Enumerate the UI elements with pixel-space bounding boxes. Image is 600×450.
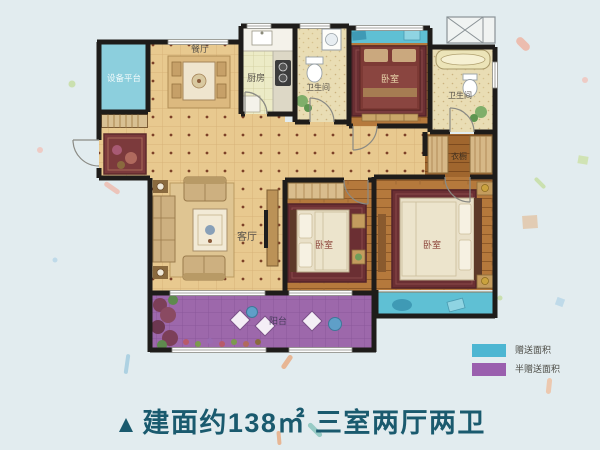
wardrobe-left — [428, 136, 448, 173]
title-caption: ▲建面约138㎡ 三室两厅两卫 — [0, 401, 600, 440]
bathroom-right-label: 卫生间 — [448, 90, 472, 100]
legend-item-gift: 赠送面积 — [472, 344, 560, 357]
living-label: 客厅 — [237, 230, 257, 243]
headboard — [290, 210, 297, 272]
window — [289, 348, 352, 353]
toilet-tank — [306, 57, 323, 64]
window — [172, 348, 266, 353]
window — [289, 291, 352, 296]
corridor-floor — [285, 122, 430, 180]
half-gift-area-swatch — [472, 363, 506, 376]
gift-area-swatch — [472, 344, 506, 357]
bedroom-master-label: 卧室 — [423, 239, 441, 250]
nightstand — [352, 214, 365, 228]
entry-rug — [104, 134, 146, 174]
dining-label: 餐厅 — [191, 43, 209, 54]
legend-half-gift-label: 半赠送面积 — [515, 363, 560, 376]
tv-console — [267, 190, 278, 266]
floorplan-drawing: 设备平台 餐厅 厨房 卫生间 卧室 卫生间 衣橱 客厅 卧室 卧室 阳台 — [0, 0, 600, 450]
legend-item-half-gift: 半赠送面积 — [472, 363, 560, 376]
legend: 赠送面积 半赠送面积 — [472, 344, 560, 376]
toilet — [307, 64, 322, 82]
kitchen-label: 厨房 — [247, 72, 265, 83]
window — [356, 26, 423, 31]
floorplan-page: 设备平台 餐厅 厨房 卫生间 卧室 卫生间 衣橱 客厅 卧室 卧室 阳台 ▲建面… — [0, 0, 600, 450]
bedroom-top-label: 卧室 — [381, 73, 399, 84]
wardrobe-right — [470, 136, 492, 173]
balcony-label: 阳台 — [269, 315, 287, 326]
window — [300, 24, 330, 29]
sofa — [153, 196, 175, 262]
elevator-shaft — [447, 17, 495, 43]
balcony-table — [329, 318, 342, 331]
balcony-table — [247, 307, 258, 318]
window — [247, 24, 271, 29]
closet-label: 衣橱 — [451, 151, 467, 161]
headboard — [474, 198, 482, 280]
tv-stand — [378, 214, 386, 272]
title-text: 建面约138㎡ 三室两厅两卫 — [142, 408, 486, 438]
entry-door-arc — [73, 140, 99, 166]
bedroom-middle-label: 卧室 — [315, 239, 333, 250]
legend-gift-label: 赠送面积 — [515, 344, 551, 357]
equipment-platform-label: 设备平台 — [107, 73, 141, 83]
window — [493, 62, 498, 88]
tv — [264, 210, 268, 248]
entry-furniture — [102, 115, 148, 175]
bathroom-top-label: 卫生间 — [306, 82, 330, 92]
title-triangle-icon: ▲ — [114, 411, 139, 438]
sliding-door — [170, 291, 265, 296]
dining-table-set — [168, 56, 230, 108]
